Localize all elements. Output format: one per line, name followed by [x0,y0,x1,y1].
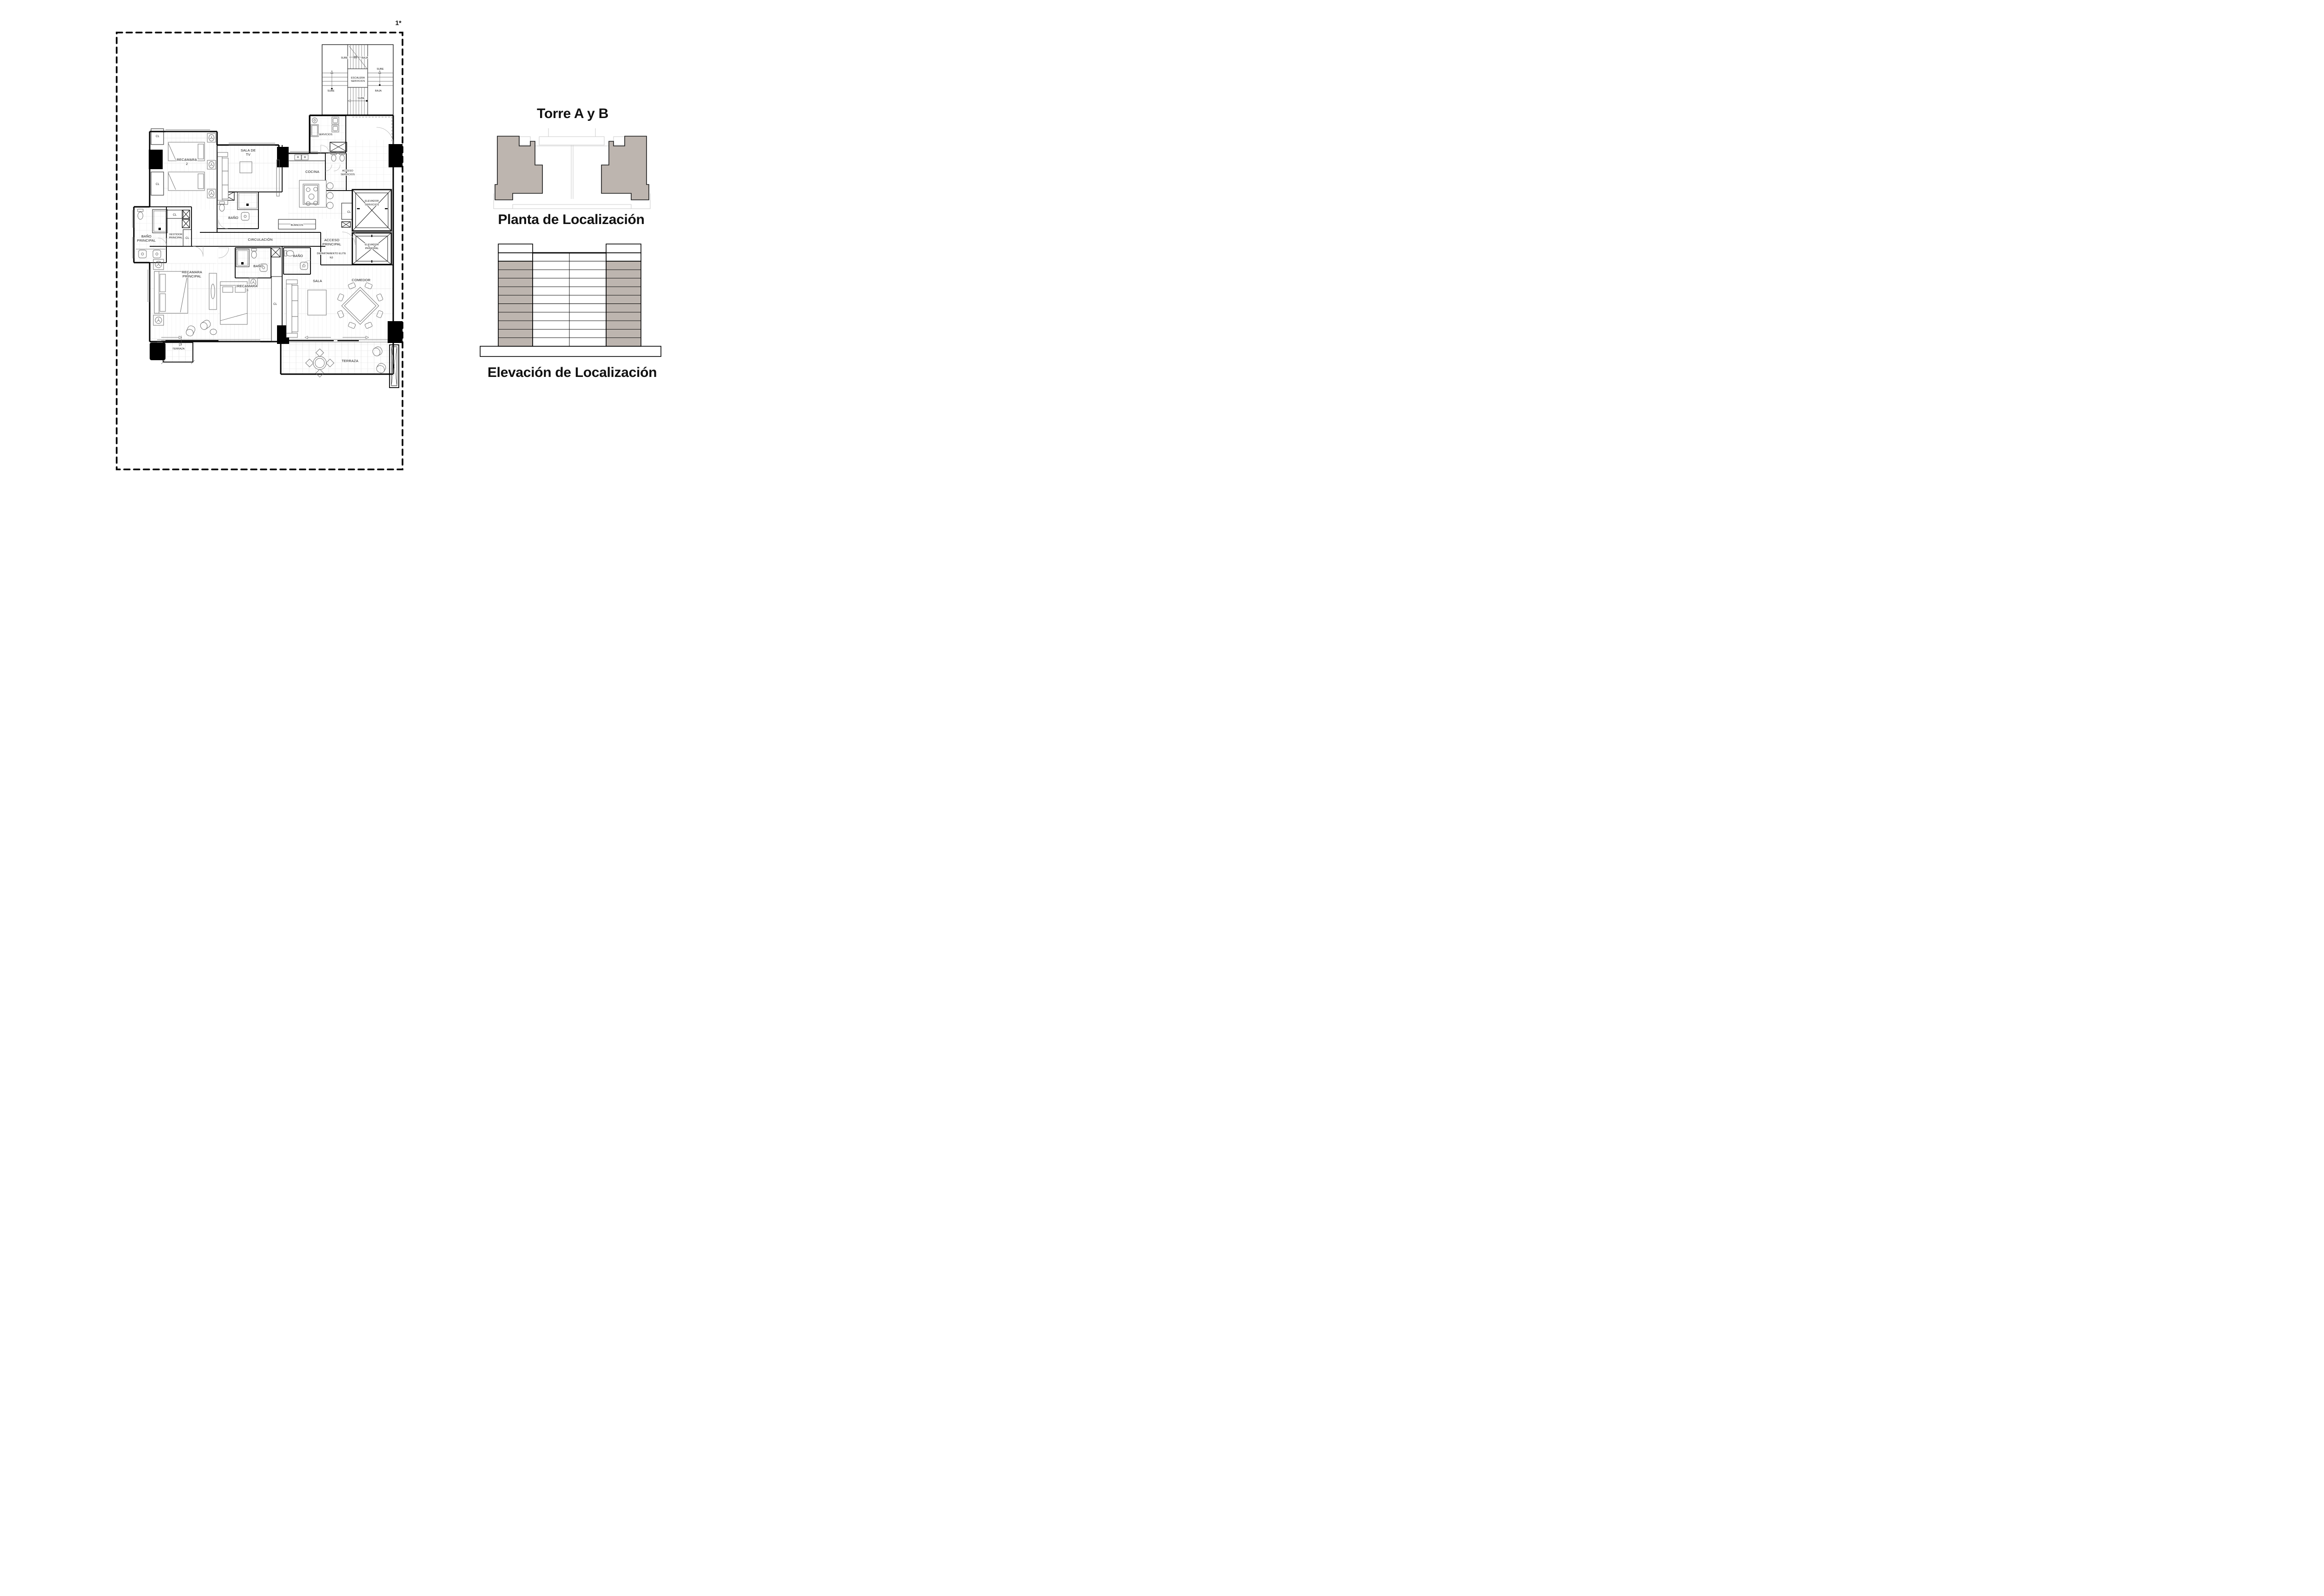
label-nivel: N3 [330,257,333,259]
stair-baja-label: BAJA [375,90,382,92]
label-recamara-principal: RECAMARA [182,270,202,274]
stair-name: SERVICIOS [351,80,365,83]
label-bano-principal: BAÑO [141,234,152,238]
tower-b-footprint [601,136,649,200]
label-recamara-principal: PRINCIPAL [183,274,201,278]
diagram-planta [494,128,650,209]
label-departamento: DEPARTAMENTO ELITE [317,252,346,255]
stair-sube-label: SUBE [357,97,365,100]
label-acceso-principal: ACCESO [324,238,340,242]
stair-baja-label: BAJA [362,57,368,59]
panel-title: Torre A y B [537,106,608,121]
stair-sube-label: SUBE [376,68,384,71]
label-blancos: BLANCOS [291,224,304,227]
label-terraza: TERRAZA [172,348,185,350]
label-vestidor: VESTIDOR [169,233,183,236]
label-closet: CL [273,303,277,306]
stair-sube-label: SUBE [327,90,335,92]
label-bano-principal: PRINCIPAL [137,238,156,243]
label-closet: CL [185,237,189,240]
duct-box [271,248,280,257]
elevator-servicios-label: ELEVADOR [365,200,379,203]
elevator-servicios-label: SERVICIOS [365,204,379,206]
sheet-number: 1* [395,19,402,26]
caption-elevacion: Elevación de Localización [488,365,657,380]
elevator-principal-label: ELEVADOR [365,244,379,246]
stair-name: ESCALERA [351,77,365,79]
label-vestidor: PRINCIPAL [169,237,182,239]
elevator-principal: ELEVADOR PRINCIPAL [352,233,391,264]
label-cocina: COCINA [305,170,319,174]
label-sala: SALA [313,279,322,283]
tower-a-footprint [495,136,542,200]
label-closet: CL [173,214,177,217]
label-closet: CL [347,211,351,214]
label-terraza: TERRAZA [342,359,358,363]
label-bano: BAÑO [293,254,303,258]
elevator-servicios: ELEVADOR SERVICIOS [352,190,391,231]
stair-sube-label: SUBE [341,57,348,59]
label-recamara-3: RECAMARA [237,284,257,288]
label-closet: CL [156,135,159,138]
elevator-principal-label: PRINCIPAL [365,247,378,250]
label-sala-tv: TV [246,152,251,157]
label-bano: BAÑO [253,264,264,268]
label-sala-tv: SALA DE [241,148,256,152]
diagram-elevacion [480,244,661,356]
label-recamara-2: RECAMARA [177,158,197,162]
label-bano: BAÑO [228,216,238,220]
label-acceso-principal: PRINCIPAL [323,242,341,246]
label-closet: CL [156,183,159,186]
architectural-sheet: 1* SUBE BAJA SUBE SUBE BAJA SUBE ESCALER… [0,0,729,494]
label-acceso-servicios: ACCESO [342,170,353,172]
label-recamara-3: 3 [246,288,248,292]
service-stair: SUBE BAJA SUBE SUBE BAJA SUBE ESCALERA S… [322,45,393,115]
label-comedor: COMEDOR [352,278,371,282]
label-circulacion: CIRCULACIÓN [248,237,272,242]
duct-box [342,222,350,227]
drawing-canvas: 1* SUBE BAJA SUBE SUBE BAJA SUBE ESCALER… [0,0,729,494]
label-servicios: SERVICIOS [318,133,333,136]
label-recamara-2: 2 [186,162,188,166]
label-acceso-servicios: SERVICIOS [341,173,355,176]
side-panel: Torre A y B Planta de Localización [480,106,661,380]
caption-planta: Planta de Localización [498,212,644,227]
